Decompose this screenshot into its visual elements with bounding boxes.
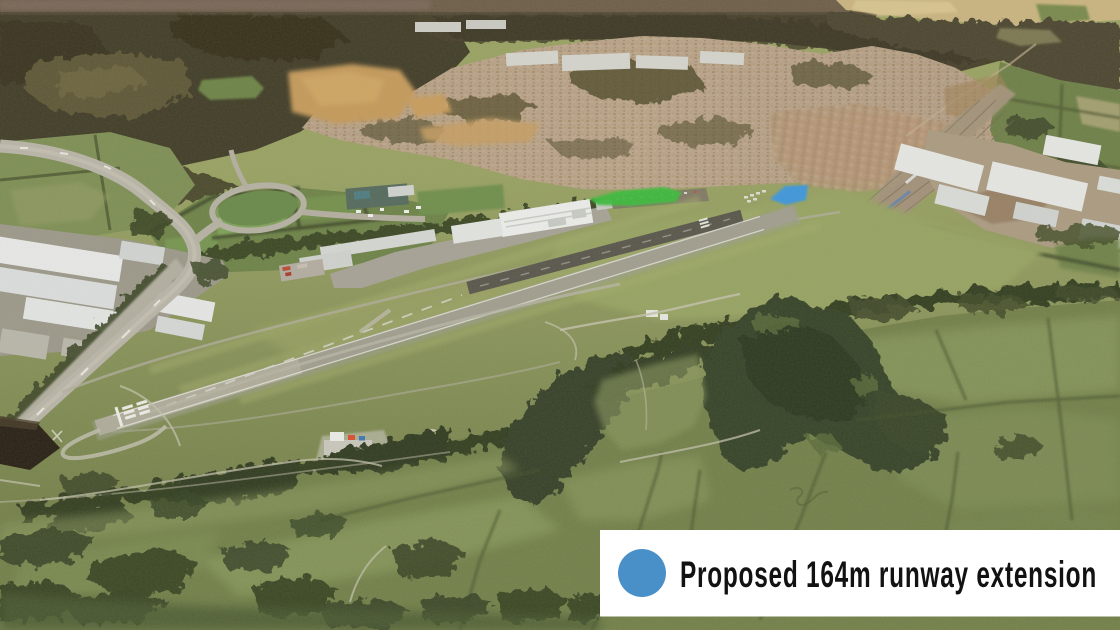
svg-text:Proposed 164m runway extension: Proposed 164m runway extension xyxy=(680,554,1097,595)
